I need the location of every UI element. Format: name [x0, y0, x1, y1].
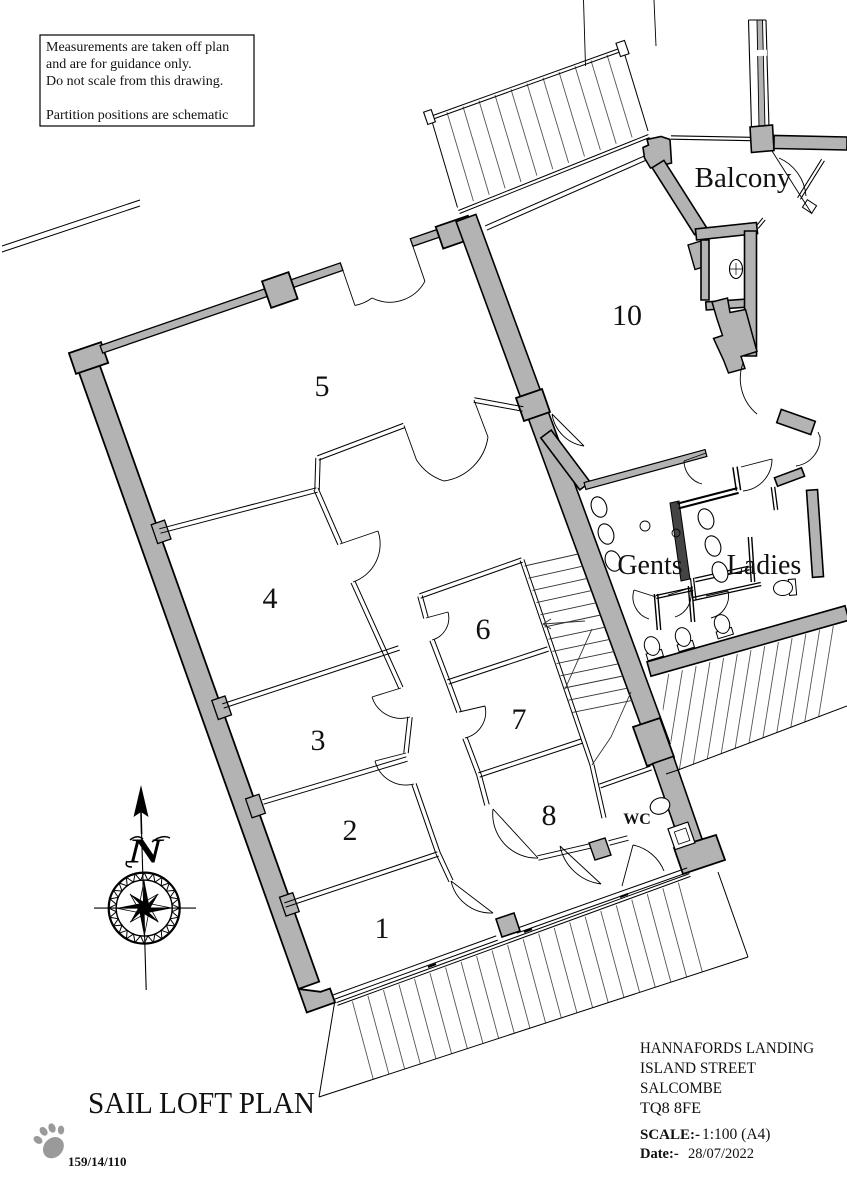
svg-text:1: 1	[375, 912, 390, 945]
svg-text:Do not scale from this drawing: Do not scale from this drawing.	[46, 74, 223, 89]
svg-text:SCALE:-: SCALE:-	[640, 1127, 700, 1143]
svg-text:and are for guidance only.: and are for guidance only.	[46, 57, 192, 72]
svg-text:Balcony: Balcony	[695, 162, 792, 194]
svg-text:7: 7	[512, 703, 527, 736]
svg-text:4: 4	[263, 582, 278, 615]
svg-text:Date:-: Date:-	[640, 1146, 679, 1162]
svg-text:SALCOMBE: SALCOMBE	[640, 1080, 722, 1097]
svg-text:159/14/110: 159/14/110	[68, 1154, 127, 1169]
svg-text:TQ8 8FE: TQ8 8FE	[640, 1100, 701, 1117]
svg-text:8: 8	[542, 799, 557, 832]
svg-text:WC: WC	[623, 811, 651, 828]
svg-text:ISLAND STREET: ISLAND STREET	[640, 1060, 757, 1077]
svg-text:1:100 (A4): 1:100 (A4)	[702, 1126, 770, 1143]
svg-text:6: 6	[476, 613, 491, 646]
svg-text:2: 2	[343, 814, 358, 847]
svg-text:28/07/2022: 28/07/2022	[688, 1146, 754, 1162]
svg-text:SAIL LOFT PLAN: SAIL LOFT PLAN	[88, 1085, 315, 1120]
svg-text:Gents: Gents	[617, 550, 682, 581]
svg-text:5: 5	[315, 370, 330, 403]
svg-text:Ladies: Ladies	[727, 550, 802, 581]
svg-text:10: 10	[612, 299, 642, 332]
svg-text:Measurements are taken off pla: Measurements are taken off plan	[46, 40, 229, 55]
svg-text:Partition positions are schema: Partition positions are schematic	[46, 108, 228, 123]
svg-text:HANNAFORDS LANDING: HANNAFORDS LANDING	[640, 1040, 814, 1057]
svg-text:3: 3	[311, 724, 326, 757]
